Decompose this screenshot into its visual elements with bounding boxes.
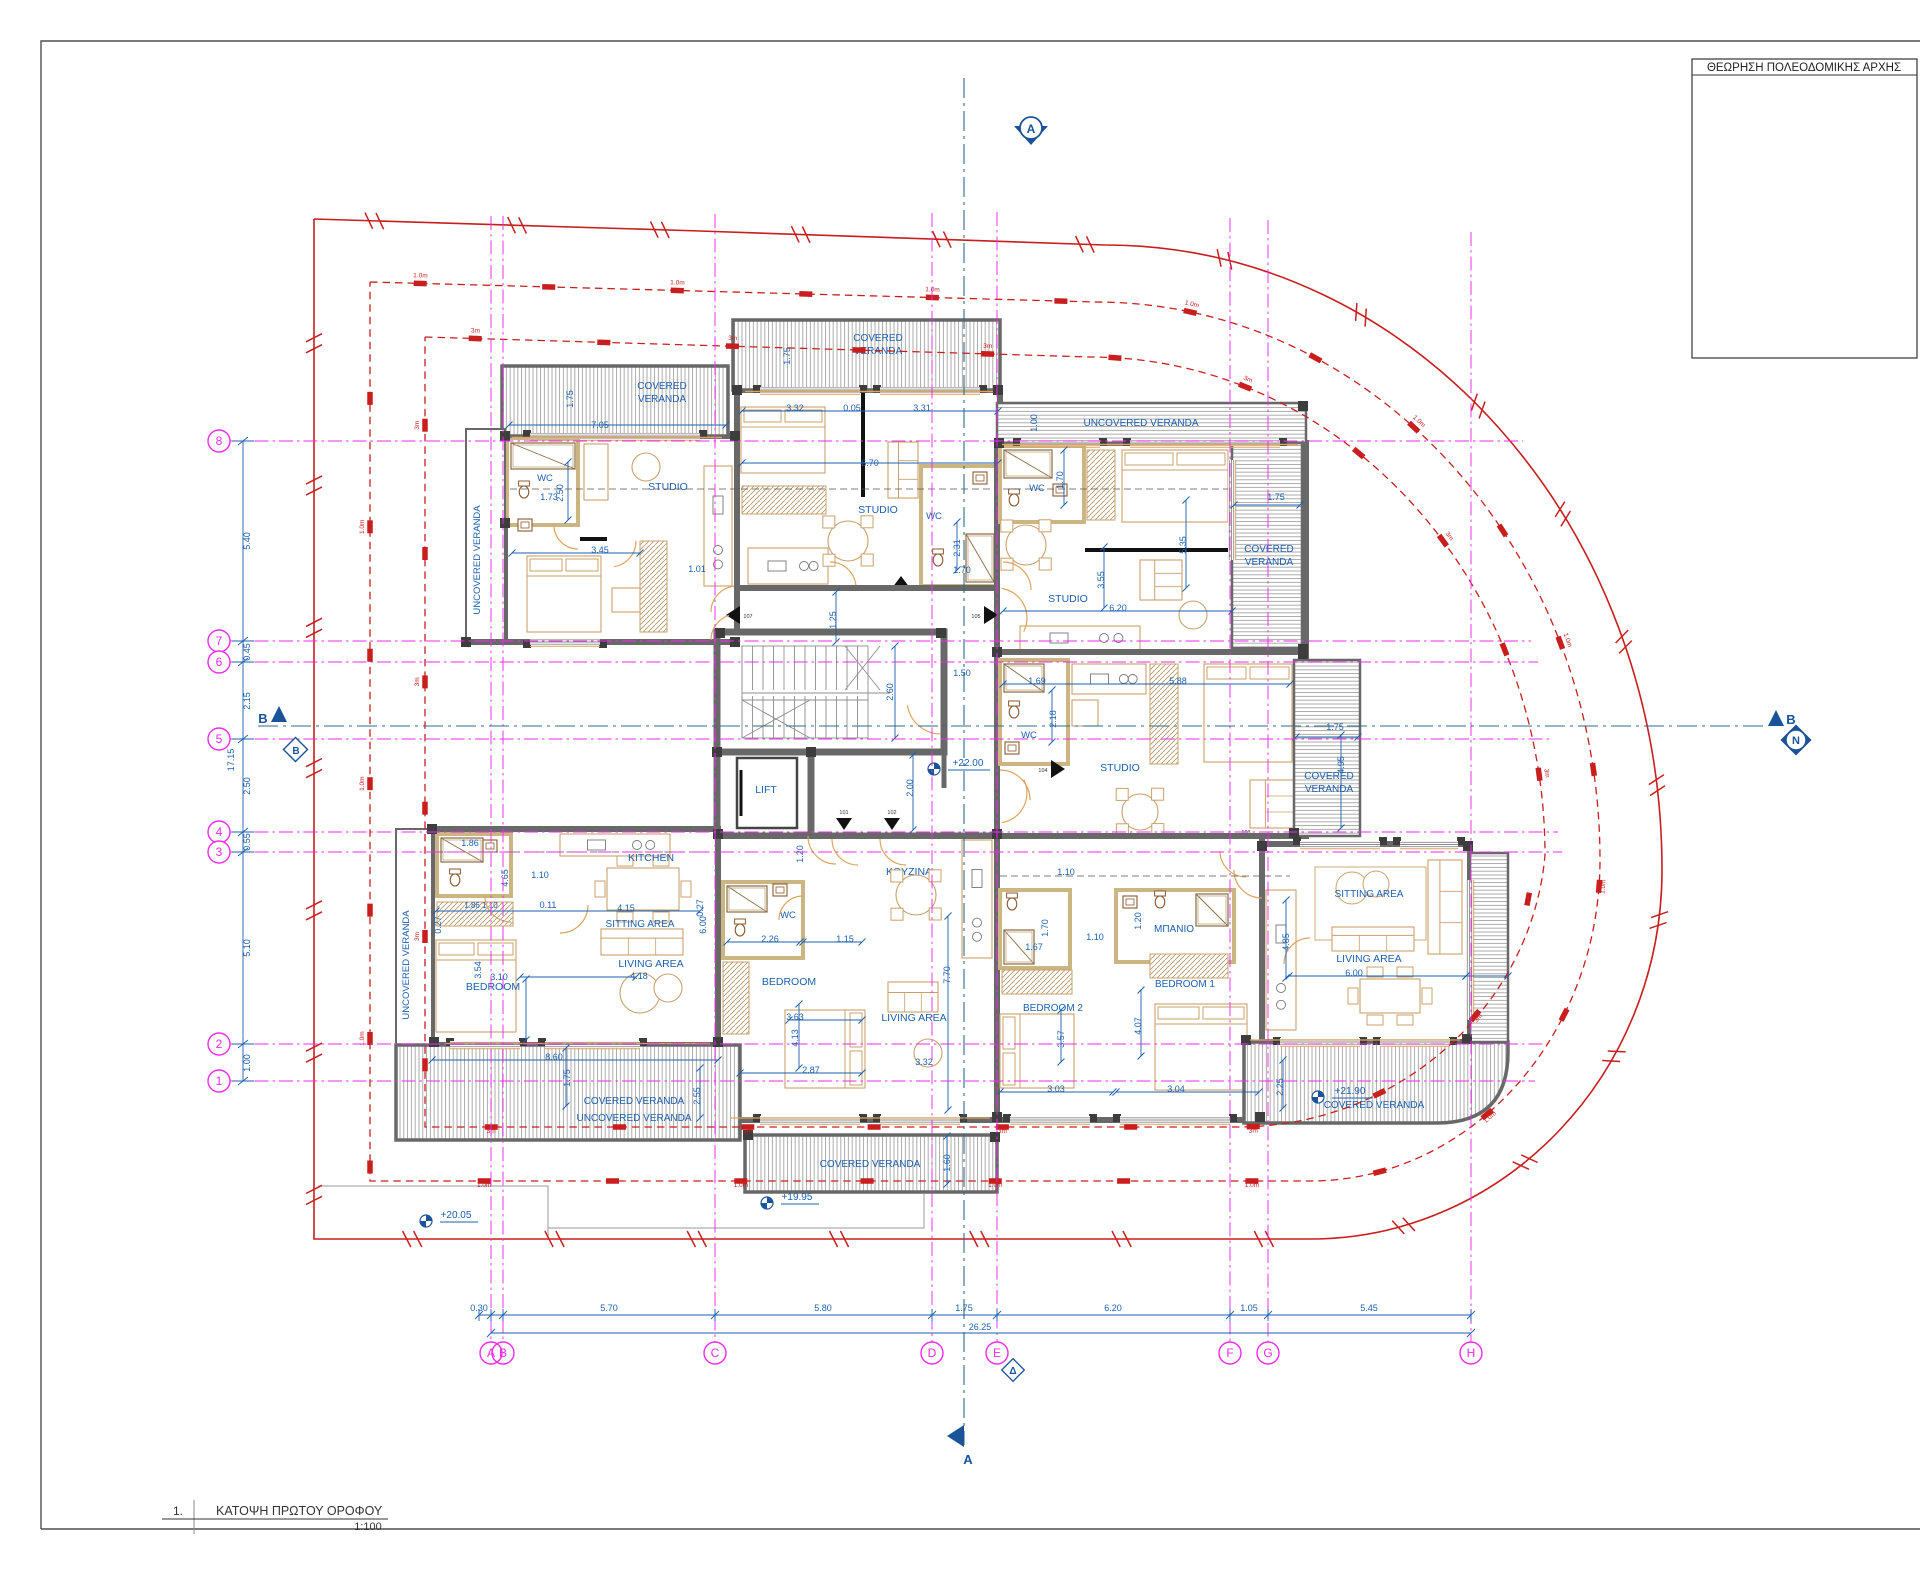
svg-text:WC: WC	[537, 473, 553, 484]
svg-text:BEDROOM: BEDROOM	[762, 976, 816, 988]
svg-text:COVERED VERANDA: COVERED VERANDA	[584, 1096, 685, 1107]
svg-text:1.0m: 1.0m	[925, 286, 940, 293]
svg-text:+19.95: +19.95	[782, 1192, 813, 1203]
svg-text:1.75: 1.75	[782, 347, 792, 365]
svg-text:2.26: 2.26	[761, 934, 779, 944]
svg-text:8: 8	[216, 434, 223, 448]
svg-text:1.73: 1.73	[540, 492, 558, 502]
svg-text:7: 7	[216, 634, 223, 648]
svg-text:COVERED: COVERED	[1304, 771, 1353, 782]
svg-text:3m: 3m	[998, 1128, 1007, 1135]
svg-text:1.67: 1.67	[1025, 942, 1043, 952]
svg-text:2.87: 2.87	[802, 1065, 820, 1075]
svg-text:17.15: 17.15	[226, 749, 236, 772]
svg-text:1.0m: 1.0m	[734, 1182, 748, 1189]
svg-text:3.32: 3.32	[915, 1057, 933, 1067]
svg-text:0.55: 0.55	[242, 833, 252, 851]
svg-text:3m: 3m	[471, 327, 480, 334]
svg-text:WC: WC	[1029, 483, 1045, 494]
svg-text:1.0m: 1.0m	[477, 1182, 491, 1189]
svg-text:5.88: 5.88	[1169, 676, 1187, 686]
svg-text:6.20: 6.20	[1104, 1303, 1122, 1313]
svg-text:F: F	[1226, 1346, 1233, 1360]
svg-text:UNCOVERED VERANDA: UNCOVERED VERANDA	[1083, 418, 1198, 429]
svg-text:3m: 3m	[743, 1128, 752, 1135]
svg-text:6.00: 6.00	[698, 916, 708, 934]
svg-text:3m: 3m	[414, 932, 421, 941]
svg-text:1.70: 1.70	[1040, 919, 1050, 937]
svg-text:UNCOVERED VERANDA: UNCOVERED VERANDA	[401, 910, 412, 1020]
svg-text:2.55: 2.55	[692, 1087, 702, 1105]
svg-text:COVERED: COVERED	[1244, 544, 1293, 555]
svg-text:1.70: 1.70	[1055, 471, 1065, 489]
svg-text:WC: WC	[780, 910, 796, 921]
svg-text:1.10: 1.10	[1086, 932, 1104, 942]
svg-text:3m: 3m	[414, 677, 421, 686]
svg-text:1.70: 1.70	[953, 565, 971, 575]
svg-text:7.70: 7.70	[942, 966, 952, 984]
svg-text:1.01: 1.01	[688, 564, 706, 574]
svg-text:5: 5	[216, 732, 223, 746]
svg-text:1.0m: 1.0m	[1245, 1182, 1259, 1189]
svg-text:LIVING AREA: LIVING AREA	[1336, 953, 1401, 965]
svg-text:3m: 3m	[1249, 1127, 1258, 1134]
svg-text:3.54: 3.54	[473, 961, 483, 979]
svg-text:3m: 3m	[414, 421, 421, 430]
svg-text:C: C	[711, 1346, 720, 1360]
svg-text:+20.05: +20.05	[441, 1210, 472, 1221]
svg-text:LIFT: LIFT	[755, 784, 777, 796]
svg-text:STUDIO: STUDIO	[1100, 762, 1140, 774]
svg-text:0.30: 0.30	[470, 1303, 488, 1313]
svg-text:STUDIO: STUDIO	[1048, 593, 1088, 605]
svg-text:BEDROOM 2: BEDROOM 2	[1023, 1003, 1083, 1014]
svg-text:6.20: 6.20	[1109, 603, 1127, 613]
svg-text:1.0m: 1.0m	[413, 272, 428, 279]
svg-text:4.65: 4.65	[500, 869, 510, 887]
svg-text:3.31: 3.31	[913, 403, 931, 413]
svg-text:UNCOVERED VERANDA: UNCOVERED VERANDA	[576, 1113, 691, 1124]
svg-text:2: 2	[216, 1037, 223, 1051]
svg-text:LIVING AREA: LIVING AREA	[618, 958, 683, 970]
svg-text:H: H	[1467, 1346, 1476, 1360]
svg-text:3.10: 3.10	[490, 972, 508, 982]
svg-text:26.25: 26.25	[969, 1322, 992, 1332]
svg-text:Δ: Δ	[1009, 1366, 1016, 1377]
svg-text:1.86: 1.86	[461, 838, 479, 848]
svg-text:3.03: 3.03	[1047, 1084, 1065, 1094]
svg-text:105: 105	[971, 614, 980, 620]
svg-text:COVERED VERANDA: COVERED VERANDA	[1324, 1100, 1425, 1111]
svg-text:0.27: 0.27	[433, 916, 443, 934]
svg-text:3m: 3m	[728, 335, 737, 342]
svg-text:3.45: 3.45	[591, 545, 609, 555]
svg-text:A: A	[1027, 122, 1036, 136]
svg-text:4.15: 4.15	[617, 903, 635, 913]
svg-text:3.04: 3.04	[1167, 1084, 1185, 1094]
svg-text:1:100: 1:100	[354, 1521, 382, 1533]
svg-text:2.15: 2.15	[242, 692, 252, 710]
svg-text:6: 6	[216, 655, 223, 669]
svg-text:N: N	[1792, 735, 1800, 747]
svg-text:1.0m: 1.0m	[670, 279, 685, 286]
svg-text:4.07: 4.07	[1133, 1017, 1143, 1035]
svg-text:UNCOVERED VERANDA: UNCOVERED VERANDA	[472, 505, 483, 615]
svg-text:1.75: 1.75	[562, 1069, 572, 1087]
svg-text:1.10: 1.10	[531, 870, 549, 880]
svg-text:1.20: 1.20	[795, 845, 805, 863]
svg-text:B: B	[499, 1346, 507, 1360]
svg-text:5.35: 5.35	[1178, 536, 1188, 554]
svg-text:+21.90: +21.90	[1335, 1086, 1366, 1097]
svg-text:101: 101	[839, 810, 848, 816]
svg-text:E: E	[993, 1346, 1001, 1360]
svg-text:WC: WC	[926, 511, 942, 522]
svg-text:2.18: 2.18	[1048, 710, 1058, 728]
svg-text:COVERED: COVERED	[637, 381, 686, 392]
svg-text:1.: 1.	[173, 1504, 183, 1518]
svg-text:1.75: 1.75	[565, 390, 575, 408]
svg-text:ΜΠΑΝΙΟ: ΜΠΑΝΙΟ	[1154, 924, 1194, 935]
svg-text:8.60: 8.60	[545, 1052, 563, 1062]
svg-text:1.10: 1.10	[1057, 867, 1075, 877]
svg-text:5.45: 5.45	[1360, 1303, 1378, 1313]
svg-text:B: B	[292, 746, 299, 757]
svg-text:5.70: 5.70	[600, 1303, 618, 1313]
svg-text:1.69: 1.69	[1028, 676, 1046, 686]
svg-text:107: 107	[743, 614, 752, 620]
svg-text:1.75: 1.75	[1326, 722, 1344, 732]
svg-text:1.05: 1.05	[1240, 1303, 1258, 1313]
svg-text:0.45: 0.45	[242, 643, 252, 661]
svg-text:1.75: 1.75	[955, 1303, 973, 1313]
svg-text:ΚΑΤΟΨΗ ΠΡΩΤΟΥ ΟΡΟΦΟΥ: ΚΑΤΟΨΗ ΠΡΩΤΟΥ ΟΡΟΦΟΥ	[216, 1504, 383, 1518]
svg-text:1.00: 1.00	[1029, 414, 1039, 432]
svg-text:5.80: 5.80	[814, 1303, 832, 1313]
svg-text:0.05: 0.05	[843, 403, 861, 413]
svg-text:STUDIO: STUDIO	[648, 481, 688, 493]
svg-text:BEDROOM 1: BEDROOM 1	[1155, 979, 1215, 990]
svg-text:1.0m: 1.0m	[359, 776, 366, 790]
svg-text:G: G	[1263, 1346, 1272, 1360]
svg-text:1: 1	[216, 1074, 223, 1088]
svg-text:104: 104	[1038, 768, 1047, 774]
svg-text:VERANDA: VERANDA	[638, 394, 687, 405]
svg-text:LIVING AREA: LIVING AREA	[881, 1012, 946, 1024]
svg-text:SITTING AREA: SITTING AREA	[606, 919, 675, 930]
svg-text:SITTING AREA: SITTING AREA	[1335, 889, 1404, 900]
svg-text:+22.00: +22.00	[953, 758, 984, 769]
svg-text:1.50: 1.50	[953, 668, 971, 678]
svg-text:1.0m: 1.0m	[359, 520, 366, 534]
svg-text:6.00: 6.00	[1345, 968, 1363, 978]
svg-text:B: B	[1786, 712, 1795, 727]
svg-text:A: A	[963, 1452, 973, 1467]
svg-text:STUDIO: STUDIO	[858, 504, 898, 516]
svg-text:VERANDA: VERANDA	[1305, 784, 1354, 795]
svg-text:1.20: 1.20	[1133, 912, 1143, 930]
svg-text:4: 4	[216, 825, 223, 839]
svg-text:ΘΕΩΡΗΣΗ ΠΟΛΕΟΔΟΜΙΚΗΣ ΑΡΧΗΣ: ΘΕΩΡΗΣΗ ΠΟΛΕΟΔΟΜΙΚΗΣ ΑΡΧΗΣ	[1707, 62, 1901, 74]
svg-text:3.55: 3.55	[1096, 571, 1106, 589]
svg-text:0.11: 0.11	[540, 900, 557, 910]
svg-text:B: B	[258, 711, 267, 726]
svg-text:1.25: 1.25	[828, 611, 838, 629]
svg-text:5.10: 5.10	[242, 939, 252, 957]
svg-text:1.0m: 1.0m	[1599, 879, 1607, 894]
svg-text:2.60: 2.60	[885, 683, 895, 701]
svg-text:1.15: 1.15	[836, 934, 854, 944]
svg-text:D: D	[928, 1346, 937, 1360]
svg-text:1.00: 1.00	[242, 1054, 252, 1072]
svg-text:2.00: 2.00	[905, 779, 915, 797]
svg-text:1.0m: 1.0m	[988, 1182, 1002, 1189]
svg-text:KITCHEN: KITCHEN	[628, 852, 674, 864]
svg-text:COVERED: COVERED	[853, 333, 902, 344]
svg-text:2.50: 2.50	[242, 777, 252, 795]
svg-text:3: 3	[216, 845, 223, 859]
svg-text:3m: 3m	[1542, 768, 1550, 778]
svg-text:102: 102	[887, 810, 896, 816]
svg-text:VERANDA: VERANDA	[1245, 557, 1294, 568]
svg-text:COVERED VERANDA: COVERED VERANDA	[820, 1159, 921, 1170]
svg-text:1.75: 1.75	[1267, 492, 1285, 502]
svg-text:BEDROOM: BEDROOM	[466, 981, 520, 993]
svg-text:3.32: 3.32	[786, 403, 804, 413]
svg-text:5.40: 5.40	[242, 532, 252, 550]
svg-text:1.86 1.10: 1.86 1.10	[464, 901, 498, 910]
svg-text:3m: 3m	[983, 343, 992, 350]
